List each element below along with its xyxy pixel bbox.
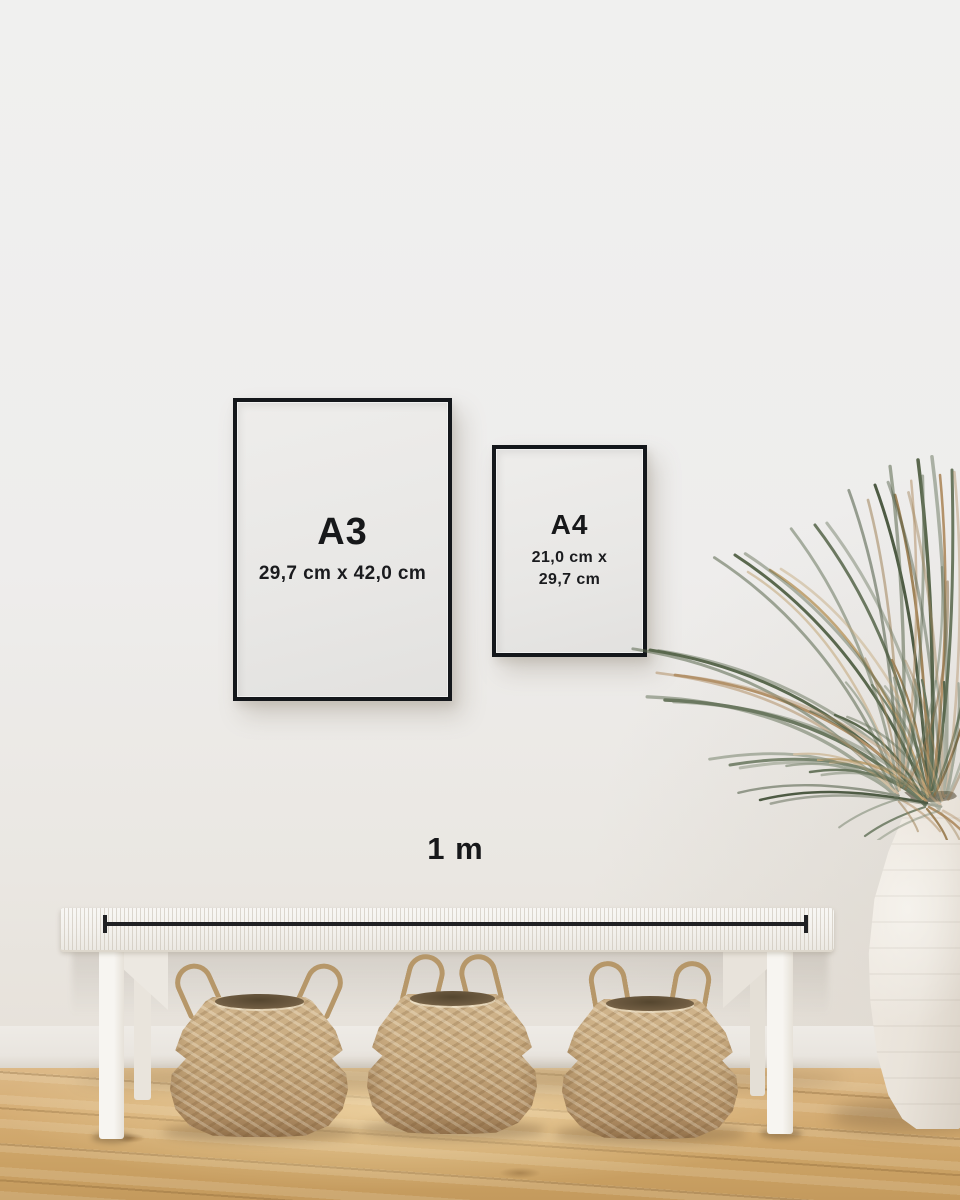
- a4-dimensions-line2: 29,7 cm: [532, 569, 608, 591]
- bench-seat: [60, 908, 834, 952]
- basket-middle: [367, 994, 537, 1134]
- frame-a3: A3 29,7 cm x 42,0 cm: [233, 398, 452, 701]
- scale-label: 1 m: [103, 831, 808, 867]
- size-guide-mockup: A3 29,7 cm x 42,0 cm A4 21,0 cm x 29,7 c…: [0, 0, 960, 1200]
- wall: [0, 0, 960, 1026]
- basket-right: [562, 999, 738, 1139]
- frame-a4-paper: A4 21,0 cm x 29,7 cm: [496, 449, 643, 653]
- basket-body: [562, 999, 738, 1139]
- a4-size-label: A4: [551, 511, 589, 539]
- basket-opening: [410, 991, 495, 1006]
- basket-opening: [215, 994, 304, 1009]
- frame-a4: A4 21,0 cm x 29,7 cm: [492, 445, 647, 657]
- scale-bar: [103, 922, 808, 926]
- basket-body: [367, 994, 537, 1134]
- basket-body: [170, 997, 348, 1137]
- frame-a3-paper: A3 29,7 cm x 42,0 cm: [237, 402, 448, 697]
- a4-dimensions-line1: 21,0 cm x: [532, 547, 608, 569]
- bench-leg-front-right: [767, 948, 793, 1134]
- a3-dimensions-label: 29,7 cm x 42,0 cm: [259, 561, 426, 587]
- bench-leg-front-left: [99, 948, 124, 1139]
- a4-dimensions-label: 21,0 cm x 29,7 cm: [532, 547, 608, 590]
- basket-left: [170, 997, 348, 1137]
- a3-size-label: A3: [317, 513, 368, 551]
- basket-opening: [606, 996, 694, 1011]
